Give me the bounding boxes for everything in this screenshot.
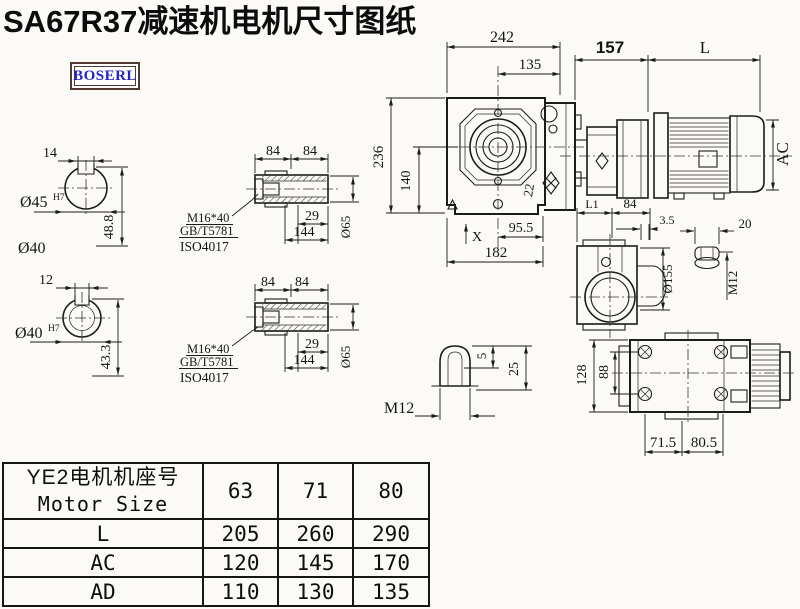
label-shaft-dia: Ø40 bbox=[18, 240, 46, 257]
dim-140: 140 bbox=[399, 171, 414, 192]
dim-84-left: 84 bbox=[261, 275, 275, 290]
dim-80-5: 80.5 bbox=[691, 435, 717, 451]
row-label-AD: AD bbox=[3, 577, 203, 606]
dim-84-left: 84 bbox=[266, 144, 280, 159]
dim-key-width-14: 14 bbox=[43, 146, 57, 161]
table-header-row: YE2电机机座号 Motor Size 63 71 80 bbox=[3, 463, 429, 519]
dim-key-depth: 43.3 bbox=[99, 345, 114, 370]
dim-20: 20 bbox=[739, 216, 752, 231]
dim-65: Ø65 bbox=[338, 346, 353, 368]
view-output-flange: L1 84 3.5 Ø155 bbox=[570, 196, 675, 338]
dim-3-5: 3.5 bbox=[660, 213, 675, 227]
frame-size-63: 63 bbox=[203, 463, 278, 519]
view-hollow-shaft-lower: 84 84 29 144 Ø65 M16*40 GB/T5781 ISO4017 bbox=[179, 275, 359, 385]
value-AD-80: 135 bbox=[353, 577, 429, 606]
view-plug-detail: 5 25 M12 bbox=[384, 346, 532, 420]
label-std-gb: GB/T5781 bbox=[180, 355, 233, 369]
dim-144: 144 bbox=[294, 353, 315, 368]
dim-key-depth: 48.8 bbox=[102, 215, 117, 240]
dim-95-5: 95.5 bbox=[509, 221, 534, 236]
view-solid-shaft-section: 14 Ø45 H7 48.8 Ø40 bbox=[18, 146, 128, 257]
datum-x: X bbox=[472, 230, 482, 245]
dim-L1: L1 bbox=[585, 197, 598, 211]
label-std-iso: ISO4017 bbox=[180, 239, 229, 254]
dim-29: 29 bbox=[305, 209, 319, 224]
dim-144: 144 bbox=[294, 225, 315, 240]
table-row-AD: AD 110 130 135 bbox=[3, 577, 429, 606]
value-L-71: 260 bbox=[278, 519, 353, 548]
label-screw: M16*40 bbox=[187, 342, 229, 356]
row-label-AC: AC bbox=[3, 548, 203, 577]
dim-29: 29 bbox=[305, 337, 319, 352]
label-std-gb: GB/T5781 bbox=[180, 224, 233, 238]
label-std-iso: ISO4017 bbox=[180, 370, 229, 385]
dim-65: Ø65 bbox=[338, 216, 353, 238]
view-hollow-shaft-upper: 84 84 29 144 Ø65 M16*40 GB/T5781 ISO4017 bbox=[179, 144, 359, 254]
view-foot-bottom: 128 88 71.5 80.5 bbox=[575, 330, 796, 456]
frame-size-80: 80 bbox=[353, 463, 429, 519]
value-L-63: 205 bbox=[203, 519, 278, 548]
dim-157: 157 bbox=[596, 38, 624, 57]
technical-drawing: 14 Ø45 H7 48.8 Ø40 12 Ø40 H7 43.3 bbox=[0, 0, 800, 458]
dim-key-width-12: 12 bbox=[39, 273, 53, 288]
table-header-cn: YE2电机机座号 bbox=[4, 465, 202, 491]
dim-m12: M12 bbox=[725, 271, 740, 296]
dim-bore-dia: Ø45 bbox=[20, 194, 48, 211]
dim-m12: M12 bbox=[384, 400, 414, 417]
dim-71-5: 71.5 bbox=[650, 435, 676, 451]
dim-135: 135 bbox=[519, 57, 542, 73]
frame-size-71: 71 bbox=[278, 463, 353, 519]
dim-AC: AC bbox=[773, 142, 792, 166]
dim-242: 242 bbox=[490, 29, 514, 46]
dim-155: Ø155 bbox=[660, 265, 675, 294]
value-AC-71: 145 bbox=[278, 548, 353, 577]
table-header-en: Motor Size bbox=[4, 492, 202, 517]
table-header-label: YE2电机机座号 Motor Size bbox=[3, 463, 203, 519]
dim-84: 84 bbox=[624, 196, 638, 211]
dim-5: 5 bbox=[474, 353, 489, 360]
dim-182: 182 bbox=[485, 245, 508, 261]
dim-bore-fit: H7 bbox=[53, 193, 65, 203]
dim-236: 236 bbox=[371, 145, 387, 168]
view-gearbox-front: 242 135 236 140 22 95.5 182 X bbox=[371, 29, 585, 267]
value-AC-80: 170 bbox=[353, 548, 429, 577]
dim-84-right: 84 bbox=[295, 275, 309, 290]
value-L-80: 290 bbox=[353, 519, 429, 548]
motor-size-table: YE2电机机座号 Motor Size 63 71 80 L 205 260 2… bbox=[2, 462, 430, 607]
view-stud-detail: 20 M12 bbox=[680, 216, 752, 300]
label-screw: M16*40 bbox=[187, 211, 229, 225]
dim-25: 25 bbox=[507, 362, 522, 376]
table-row-AC: AC 120 145 170 bbox=[3, 548, 429, 577]
value-AD-71: 130 bbox=[278, 577, 353, 606]
table-row-L: L 205 260 290 bbox=[3, 519, 429, 548]
value-AC-63: 120 bbox=[203, 548, 278, 577]
dim-L: L bbox=[700, 38, 710, 57]
dim-bore-dia: Ø40 bbox=[15, 325, 43, 342]
view-hollow-shaft-section: 12 Ø40 H7 43.3 bbox=[15, 273, 124, 376]
value-AD-63: 110 bbox=[203, 577, 278, 606]
dim-bore-fit: H7 bbox=[48, 324, 60, 334]
view-gearmotor-side: 157 L AC bbox=[560, 38, 792, 199]
dim-88: 88 bbox=[597, 365, 612, 379]
row-label-L: L bbox=[3, 519, 203, 548]
dim-84-right: 84 bbox=[303, 144, 317, 159]
note-22: 22 bbox=[520, 183, 537, 198]
dim-128: 128 bbox=[575, 365, 590, 386]
